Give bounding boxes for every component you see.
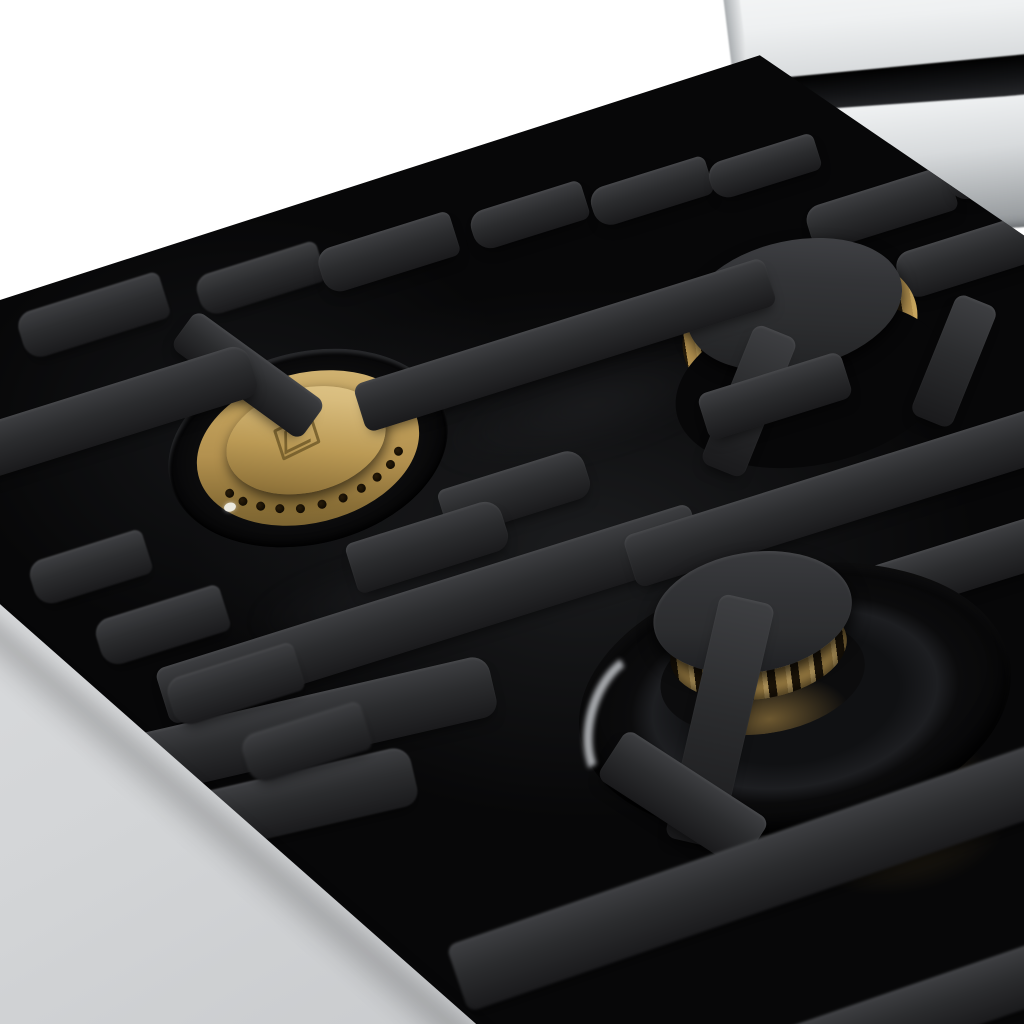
flame-port — [274, 503, 285, 514]
flame-port — [255, 501, 266, 512]
flame-port — [238, 495, 249, 506]
flame-port — [385, 459, 396, 470]
product-photo — [0, 0, 1024, 1024]
flame-port — [393, 445, 404, 456]
flame-port — [295, 503, 306, 514]
flame-port — [356, 483, 367, 494]
flame-port — [337, 492, 348, 503]
flame-port — [372, 472, 383, 483]
flame-port — [224, 487, 235, 498]
flame-port — [317, 499, 328, 510]
